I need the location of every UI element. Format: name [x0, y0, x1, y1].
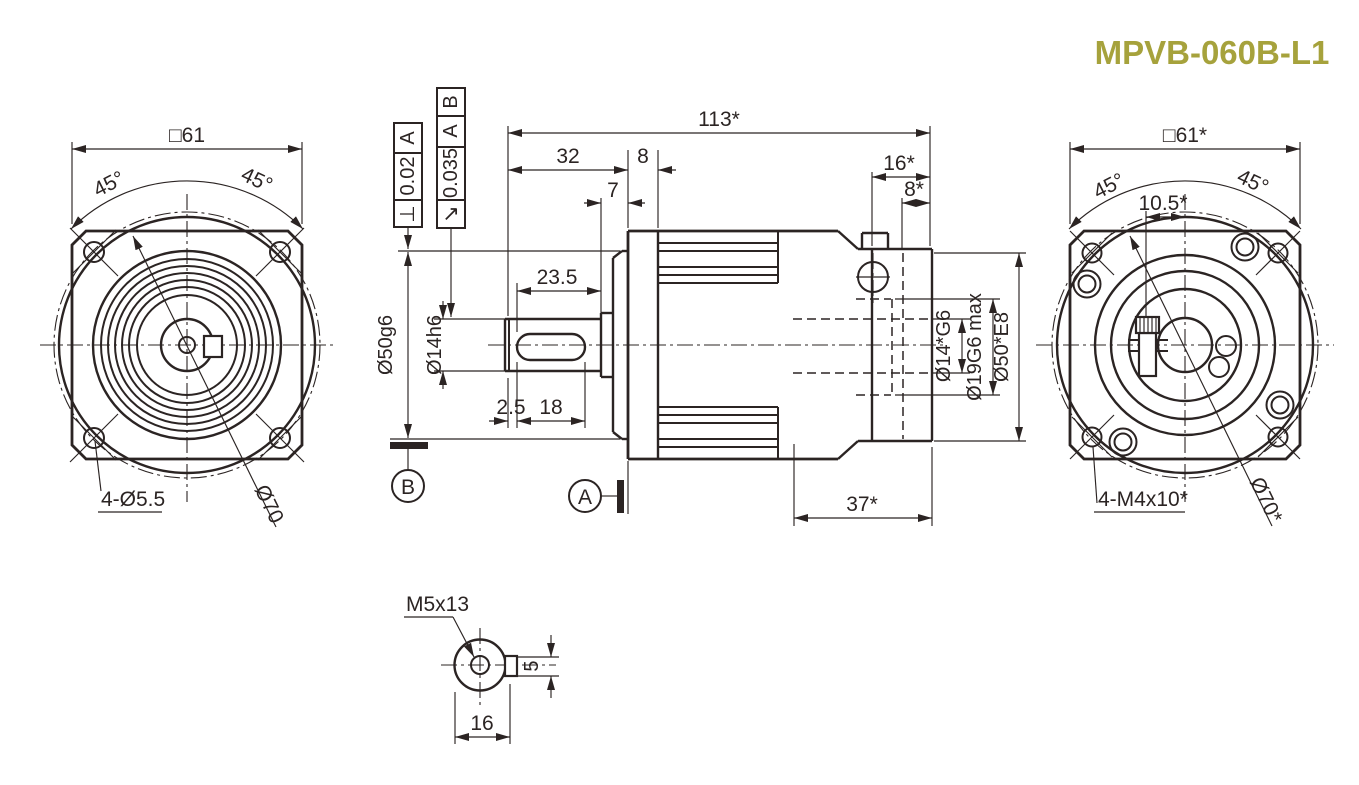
dim-screw-offset: 10.5*	[1138, 192, 1187, 215]
dia-bore-max: Ø19G6 max	[964, 293, 986, 401]
dim-keyway-full: 23.5	[537, 266, 578, 289]
dim-angle-right: 45°	[1233, 165, 1272, 199]
technical-drawing: MPVB-060B-L1 □61 45° 45° Ø70	[0, 0, 1359, 785]
dim-across: 16	[470, 712, 493, 735]
thread-callout: M5x13	[406, 593, 469, 616]
front-view: □61 45° 45° Ø70 4-Ø5.5	[40, 124, 336, 527]
datum-a: A	[578, 486, 592, 509]
dim-key-width: 5	[521, 660, 543, 671]
side-view: 113* 32 8 7 16* 8* 23.5 2.5 18 Ø50g6 B	[375, 88, 1026, 526]
pin-hole	[1209, 357, 1229, 377]
perpendicularity-icon: ⊥	[397, 205, 419, 222]
dim-angle-left: 45°	[1090, 169, 1129, 204]
fcf-perp-tolerance: 0.02	[397, 157, 419, 196]
dim-key-offset: 2.5	[496, 396, 525, 419]
dim-key-len: 18	[539, 396, 562, 419]
fcf-runout-tolerance: 0.035	[440, 148, 462, 198]
fcf-perpendicularity: A 0.02 ⊥	[394, 123, 422, 249]
dim-rear-depth: 37*	[846, 493, 878, 516]
dim-motor-flange: 8*	[904, 178, 924, 201]
fcf-runout: B A 0.035 ↗	[437, 88, 465, 317]
dim-motor-side: 16*	[883, 152, 915, 175]
datum-b-target	[390, 442, 428, 449]
hidden-bore	[793, 253, 930, 439]
rear-view: □61* 45° 45° 10.5* Ø70* 4-M4x10*	[1036, 124, 1334, 527]
dim-width: □61	[169, 124, 205, 147]
key-tab	[505, 656, 517, 676]
dim-overall: 113*	[698, 108, 740, 131]
shaft-end-view: M5x13 5 16	[404, 593, 559, 744]
fcf-runout-datum2: B	[440, 95, 462, 108]
dim-flange-thk: 8	[637, 145, 649, 168]
holes-callout: 4-M4x10*	[1098, 488, 1188, 511]
datum-a-target	[617, 480, 624, 513]
dia-bore: Ø14*G6	[933, 310, 955, 382]
keyway-slot	[517, 334, 585, 360]
dia-shaft: Ø14h6	[424, 315, 446, 375]
keyway-tab	[204, 336, 222, 357]
datum-b: B	[401, 476, 415, 499]
dim-shaft-len: 32	[556, 145, 579, 168]
fcf-runout-datum1: A	[440, 124, 462, 138]
dim-bolt-circle: Ø70*	[1245, 474, 1287, 527]
drawing-title: MPVB-060B-L1	[1095, 34, 1330, 71]
dia-pilot: Ø50g6	[375, 315, 397, 375]
runout-arrow-icon: ↗	[442, 203, 460, 226]
dim-angle-right: 45°	[237, 163, 276, 197]
dim-angle-left: 45°	[90, 167, 129, 202]
dim-bolt-circle: Ø70	[250, 481, 288, 527]
dim-width: □61*	[1163, 124, 1207, 147]
drawing-canvas: MPVB-060B-L1 □61 45° 45° Ø70	[0, 0, 1359, 785]
dia-recess: Ø50*E8	[991, 312, 1013, 382]
dim-collar: 7	[607, 179, 619, 202]
holes-callout: 4-Ø5.5	[101, 488, 165, 511]
pin-hole	[1216, 336, 1236, 356]
fcf-perp-datum: A	[397, 131, 419, 145]
datum-a-flag: A	[569, 461, 628, 514]
